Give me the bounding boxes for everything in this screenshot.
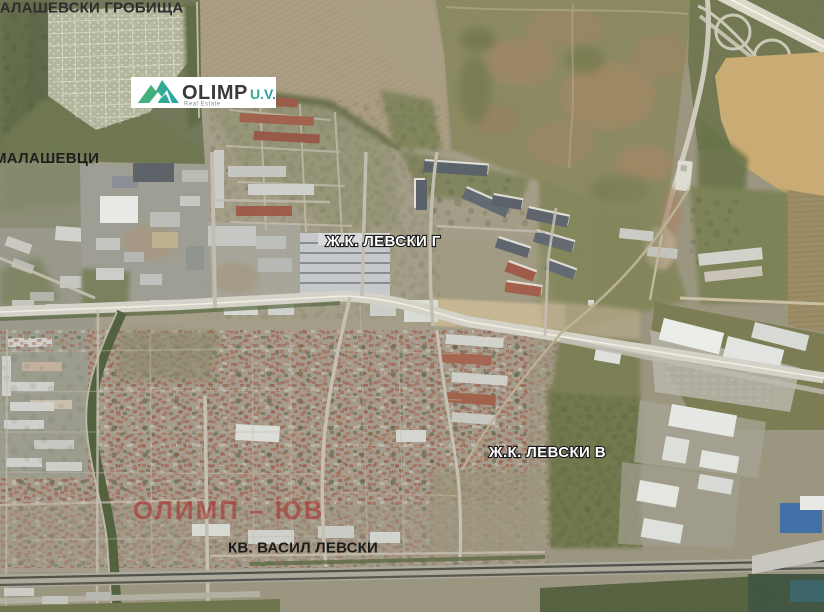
- svg-text:МАЛАШЕВЦИ: МАЛАШЕВЦИ: [0, 150, 99, 167]
- svg-text:ОЛИМП – ЮВ: ОЛИМП – ЮВ: [133, 495, 324, 525]
- svg-text:U.V.: U.V.: [250, 86, 276, 102]
- svg-text:МАЛАШЕВСКИ ГРОБИЩА: МАЛАШЕВСКИ ГРОБИЩА: [0, 0, 183, 17]
- svg-text:Real Estate: Real Estate: [184, 102, 221, 108]
- svg-text:Ж.К. ЛЕВСКИ Г: Ж.К. ЛЕВСКИ Г: [325, 233, 441, 250]
- svg-text:КВ. ВАСИЛ ЛЕВСКИ: КВ. ВАСИЛ ЛЕВСКИ: [228, 540, 378, 557]
- svg-text:Ж.К. ЛЕВСКИ В: Ж.К. ЛЕВСКИ В: [488, 444, 606, 461]
